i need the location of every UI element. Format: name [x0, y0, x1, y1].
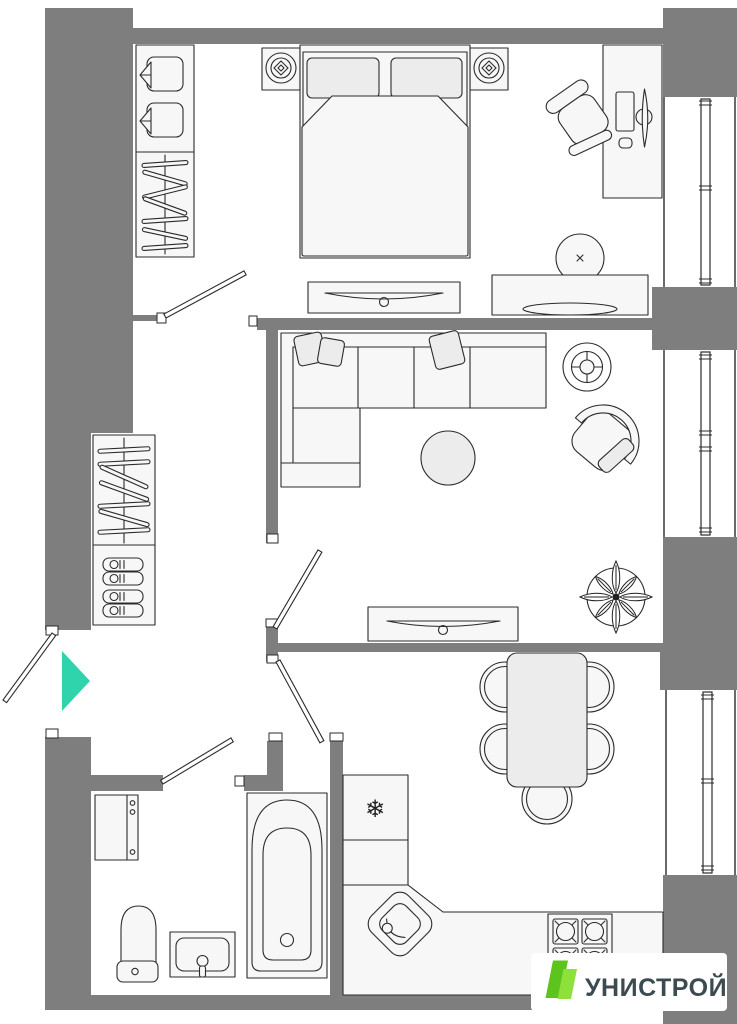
wall-bath-top-left	[91, 775, 163, 791]
balconies	[664, 97, 735, 875]
snowflake-icon: ❄	[365, 795, 385, 823]
desk	[603, 45, 662, 198]
floor-plan-page: ❄	[0, 0, 737, 1024]
window-glazing	[701, 352, 710, 535]
wall-bath-kitchen	[330, 741, 343, 995]
toilet	[117, 906, 158, 982]
double-bed	[300, 45, 470, 258]
toilet-bowl	[121, 906, 156, 963]
wall-hall-living	[266, 330, 278, 543]
living-room	[281, 330, 654, 641]
kitchen-door-leaf	[276, 660, 324, 743]
bedroom-tv-console	[308, 282, 460, 313]
balcony-bottom	[666, 690, 735, 875]
wall-corner-top-right	[663, 8, 737, 97]
wall-left-middle	[45, 433, 91, 630]
dresser	[492, 275, 648, 315]
wall-living-kitchen-divider	[278, 643, 672, 652]
washing-machine	[95, 795, 138, 860]
floor-plan-drawing: ❄	[0, 0, 737, 1024]
shoe	[103, 604, 143, 617]
living-tv-stand	[368, 607, 518, 641]
nightstand-right	[470, 48, 508, 90]
pillow	[391, 58, 462, 98]
blanket	[302, 96, 468, 256]
plant-center	[613, 594, 620, 601]
bedroom	[136, 45, 662, 315]
corner-sofa	[281, 330, 546, 487]
folded-towels-box	[147, 103, 183, 137]
toilet-tank	[117, 961, 158, 982]
bathtub	[247, 793, 327, 978]
hall-wardrobe	[93, 435, 155, 625]
developer-logo: УНИСТРОЙ	[531, 953, 727, 1011]
living-room-door-leaf	[273, 550, 322, 629]
wall-bedroom-door-jamb	[133, 315, 158, 321]
bedroom-door-leaf	[164, 271, 246, 318]
entrance-arrow	[62, 651, 90, 711]
kitchen-cabinet	[343, 840, 408, 885]
sink-vanity	[170, 932, 235, 977]
entrance-door-leaf	[3, 633, 56, 703]
keyboard	[616, 92, 634, 131]
wall-dining-right-stub	[660, 643, 672, 690]
potted-plant	[580, 561, 652, 633]
wall-between-balcony-2-3	[663, 537, 737, 690]
shoe	[103, 590, 143, 603]
wall-left-upper	[45, 8, 133, 433]
dining-table	[507, 653, 587, 787]
coffee-table	[421, 431, 475, 485]
nightstand-left	[262, 48, 300, 90]
kitchen-dining: ❄	[343, 653, 663, 995]
shoe	[103, 558, 143, 571]
dining-set	[480, 653, 614, 824]
folded-towels-box	[147, 57, 183, 91]
wall-bath-top-right	[244, 775, 283, 791]
wall-top	[45, 28, 663, 44]
sofa-cushion	[317, 337, 345, 367]
wall-left-lower	[45, 737, 91, 1010]
armchair	[559, 390, 653, 483]
wall-bath-stub	[267, 741, 283, 775]
shoe	[103, 572, 143, 585]
wall-bedroom-living-divider	[257, 318, 737, 330]
pillow	[307, 58, 379, 98]
bedroom-wardrobe	[136, 45, 194, 257]
balcony-top	[664, 97, 735, 287]
faucet	[197, 956, 208, 967]
bathroom-door-leaf	[161, 738, 234, 784]
bathroom	[95, 793, 327, 982]
logo-text: УНИСТРОЙ	[585, 972, 727, 1002]
ceiling-fan-icon	[563, 343, 611, 391]
mouse	[619, 138, 632, 148]
fridge: ❄	[343, 775, 408, 840]
window-glazing	[701, 99, 710, 285]
balcony-middle	[664, 350, 735, 537]
